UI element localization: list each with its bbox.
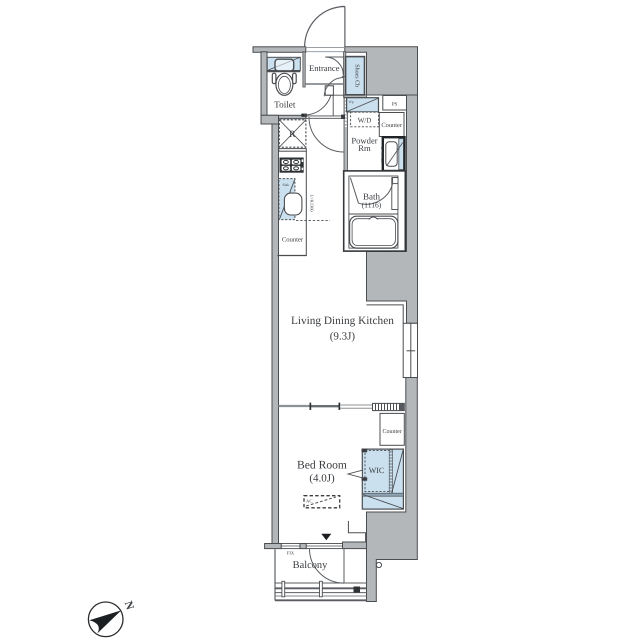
svg-text:(9.3J): (9.3J) bbox=[330, 331, 356, 343]
svg-text:L=W750: L=W750 bbox=[380, 147, 385, 164]
svg-text:Counter: Counter bbox=[381, 122, 402, 129]
svg-text:AC: AC bbox=[306, 498, 312, 503]
svg-text:Rm: Rm bbox=[358, 143, 371, 153]
svg-text:Toilet: Toilet bbox=[274, 100, 296, 110]
svg-text:(4.0J): (4.0J) bbox=[309, 473, 335, 485]
svg-text:Sink: Sink bbox=[283, 183, 290, 187]
svg-text:WIC: WIC bbox=[369, 466, 385, 475]
svg-text:W/D: W/D bbox=[358, 117, 372, 125]
svg-text:Shoes Cb: Shoes Cb bbox=[353, 64, 360, 87]
svg-text:FIX: FIX bbox=[287, 551, 295, 556]
svg-text:R: R bbox=[289, 130, 296, 140]
svg-text:Wp: Wp bbox=[349, 100, 354, 104]
svg-text:Entrance: Entrance bbox=[309, 63, 340, 73]
svg-text:L=K1300: L=K1300 bbox=[310, 195, 315, 213]
svg-text:Balcony: Balcony bbox=[293, 560, 328, 571]
svg-text:PS: PS bbox=[392, 101, 398, 107]
svg-text:Bed Room: Bed Room bbox=[297, 459, 347, 472]
svg-text:Counter: Counter bbox=[282, 237, 304, 244]
svg-text:Counter: Counter bbox=[383, 429, 402, 435]
svg-text:(1116): (1116) bbox=[362, 200, 382, 209]
svg-text:N: N bbox=[122, 600, 136, 612]
svg-text:Living Dining Kitchen: Living Dining Kitchen bbox=[291, 315, 394, 327]
